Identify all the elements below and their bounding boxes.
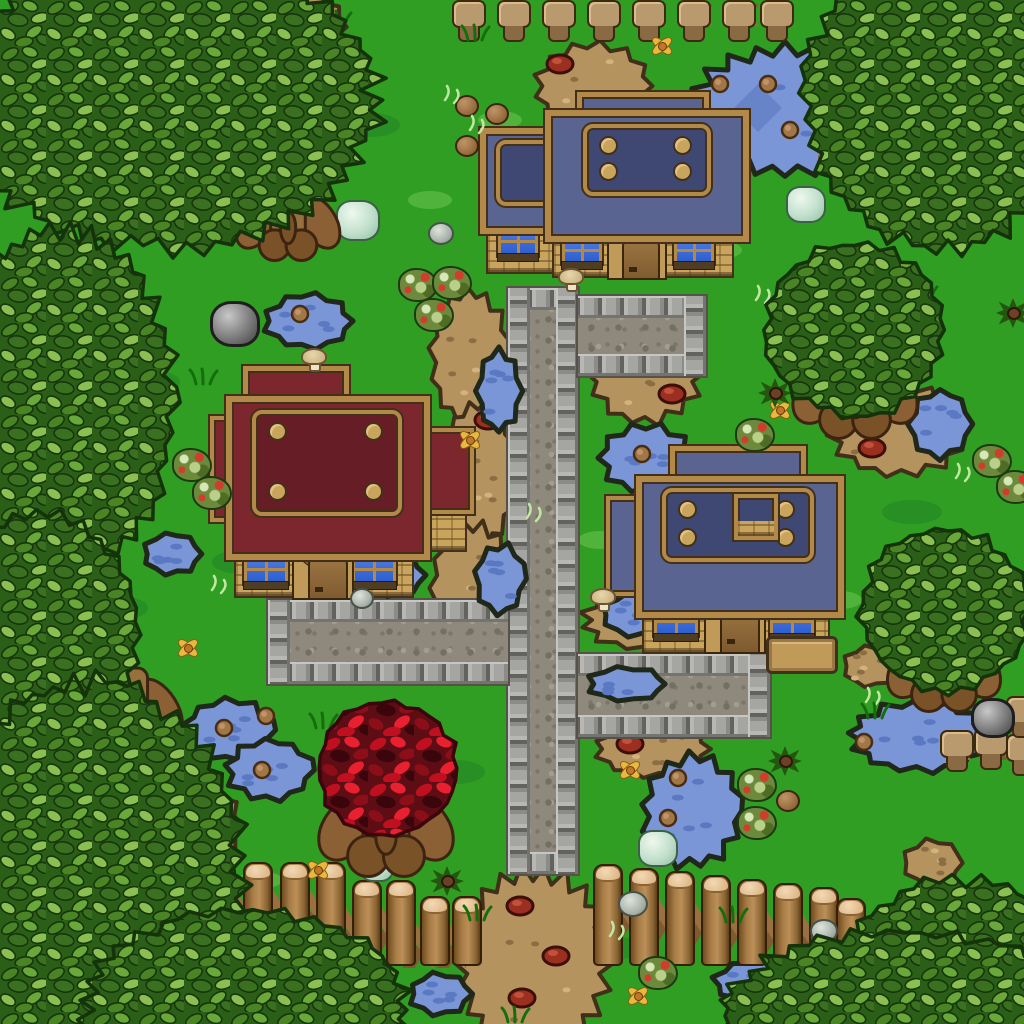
game-map[interactable] xyxy=(0,0,1024,1024)
tree-canopy xyxy=(718,929,1024,1024)
tree-layer xyxy=(0,0,1024,1024)
round-tree xyxy=(856,528,1024,711)
red-tree xyxy=(308,700,464,876)
round-tree xyxy=(764,242,945,439)
tree-canopy xyxy=(799,0,1024,257)
